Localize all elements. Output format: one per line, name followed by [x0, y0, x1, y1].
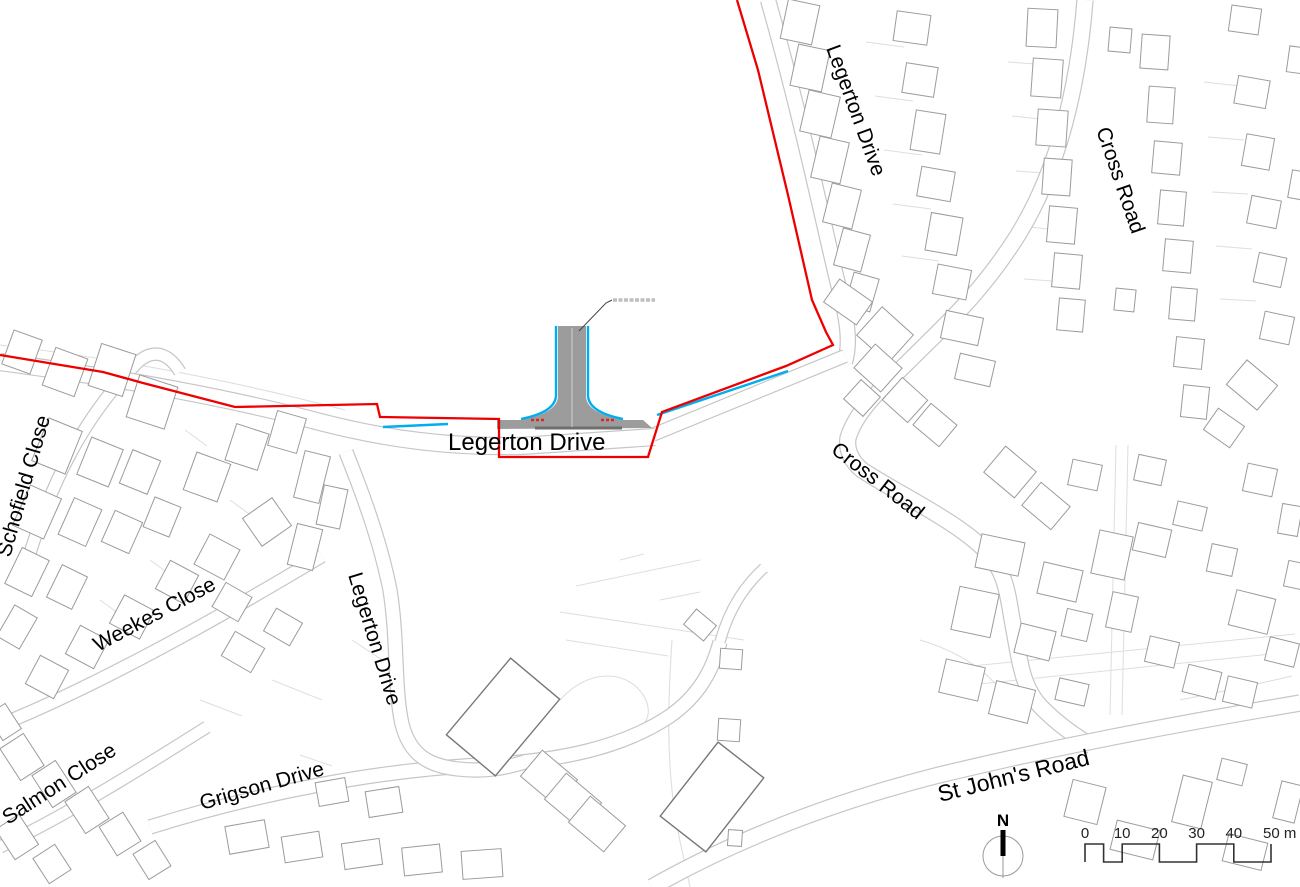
scale-bar-label: 20: [1151, 825, 1168, 842]
building-outline: [925, 213, 963, 256]
building-outline: [719, 648, 742, 669]
building-outline: [1057, 298, 1086, 332]
building-outline: [1174, 337, 1205, 370]
building-outline: [1052, 253, 1083, 289]
building-outline: [1147, 86, 1175, 124]
building-outline: [917, 166, 956, 201]
scale-bar-label: 0: [1081, 825, 1089, 842]
building-outline: [1134, 454, 1167, 485]
building-outline: [1046, 206, 1077, 244]
building-outline: [461, 849, 503, 880]
building-outline: [315, 778, 349, 807]
north-label: N: [997, 811, 1009, 830]
building-outline: [1241, 134, 1274, 170]
street-label: Legerton Drive: [448, 429, 605, 456]
building-outline: [1247, 195, 1282, 228]
building-outline: [1031, 58, 1064, 98]
building-outline: [1206, 544, 1237, 577]
building-outline: [1061, 608, 1093, 641]
building-outline: [1036, 109, 1068, 147]
building-outline: [717, 718, 740, 741]
building-outline: [727, 830, 742, 847]
building-outline: [1114, 288, 1136, 312]
building-outline: [1158, 190, 1187, 226]
building-outline: [1068, 459, 1103, 491]
building-outline: [951, 586, 999, 637]
building-outline: [1259, 311, 1294, 345]
building-outline: [893, 11, 931, 45]
scale-bar-label: 50 m: [1263, 825, 1296, 842]
building-outline: [1108, 27, 1132, 53]
building-outline: [902, 63, 938, 98]
building-outline: [1228, 5, 1261, 35]
building-outline: [365, 787, 403, 818]
site-plan-svg: Schofield CloseWeekes CloseSalmon CloseG…: [0, 0, 1300, 887]
building-outline: [1163, 239, 1194, 273]
scale-bar-label: 40: [1225, 825, 1242, 842]
building-outline: [932, 264, 971, 300]
building-outline: [281, 831, 323, 863]
building-outline: [1180, 385, 1209, 420]
building-outline: [1242, 463, 1277, 497]
scale-bar-label: 30: [1188, 825, 1205, 842]
building-outline: [1152, 141, 1183, 175]
building-outline: [402, 844, 443, 876]
building-outline: [1042, 158, 1072, 196]
building-outline: [1140, 34, 1170, 70]
site-plan-map: Schofield CloseWeekes CloseSalmon CloseG…: [0, 0, 1300, 887]
building-outline: [341, 838, 382, 869]
scale-bar-label: 10: [1114, 825, 1131, 842]
building-outline: [1026, 8, 1058, 48]
building-outline: [1169, 287, 1198, 321]
building-outline: [1234, 75, 1270, 108]
building-outline: [910, 110, 946, 154]
building-outline: [1253, 252, 1287, 287]
